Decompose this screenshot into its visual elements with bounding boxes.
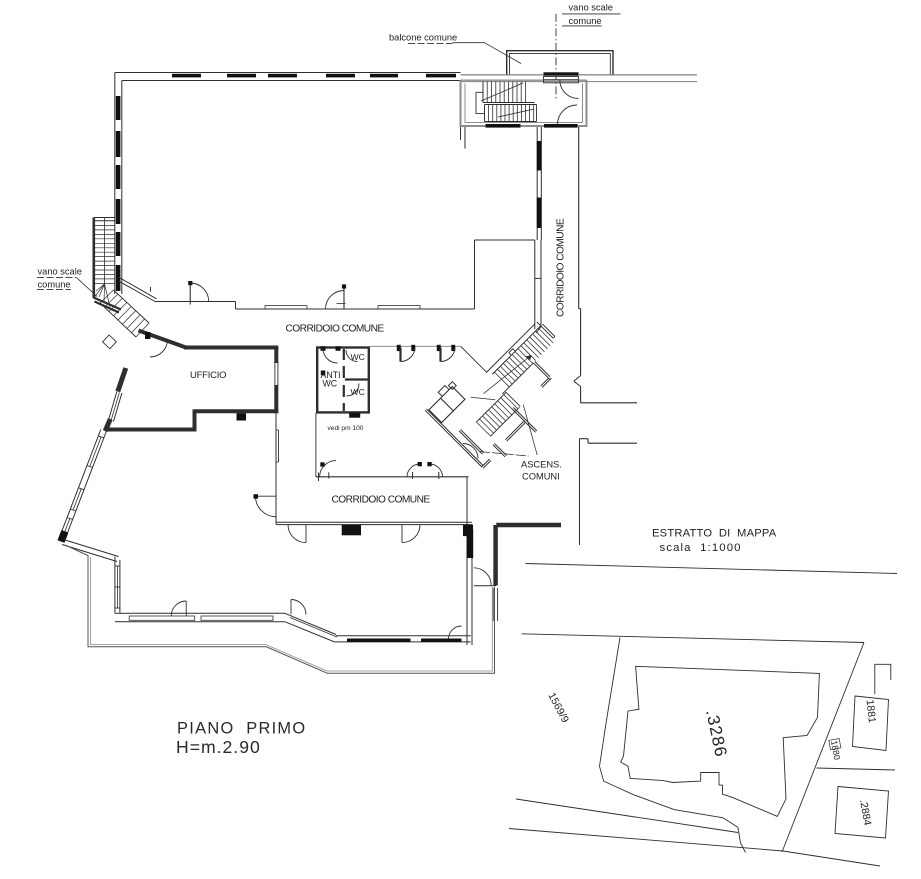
svg-text:UFFICIO: UFFICIO bbox=[190, 370, 226, 381]
svg-text:vano scale: vano scale bbox=[38, 267, 82, 277]
svg-text:vedi pm 100: vedi pm 100 bbox=[328, 425, 364, 432]
svg-text:PIANO PRIMO: PIANO PRIMO bbox=[177, 720, 306, 738]
svg-text:comune: comune bbox=[38, 279, 71, 289]
svg-text:CORRIDOIO COMUNE: CORRIDOIO COMUNE bbox=[556, 218, 567, 317]
svg-text:CORRIDOIO COMUNE: CORRIDOIO COMUNE bbox=[286, 324, 385, 335]
svg-text:vano scale: vano scale bbox=[569, 3, 613, 13]
svg-text:balcone comune: balcone comune bbox=[389, 33, 457, 43]
svg-text:H=m.2.90: H=m.2.90 bbox=[176, 737, 261, 757]
svg-text:scala 1:1000: scala 1:1000 bbox=[660, 542, 742, 554]
svg-text:WC: WC bbox=[323, 378, 338, 388]
svg-text:1881: 1881 bbox=[864, 699, 878, 724]
svg-text:WC: WC bbox=[351, 387, 365, 397]
svg-text:CORRIDOIO COMUNE: CORRIDOIO COMUNE bbox=[332, 495, 431, 506]
svg-text:WC: WC bbox=[351, 352, 365, 362]
svg-text:comune: comune bbox=[569, 16, 602, 26]
svg-text:ASCENS.: ASCENS. bbox=[521, 460, 562, 470]
svg-text:COMUNI: COMUNI bbox=[522, 472, 560, 482]
svg-text:ESTRATTO DI MAPPA: ESTRATTO DI MAPPA bbox=[652, 528, 777, 540]
